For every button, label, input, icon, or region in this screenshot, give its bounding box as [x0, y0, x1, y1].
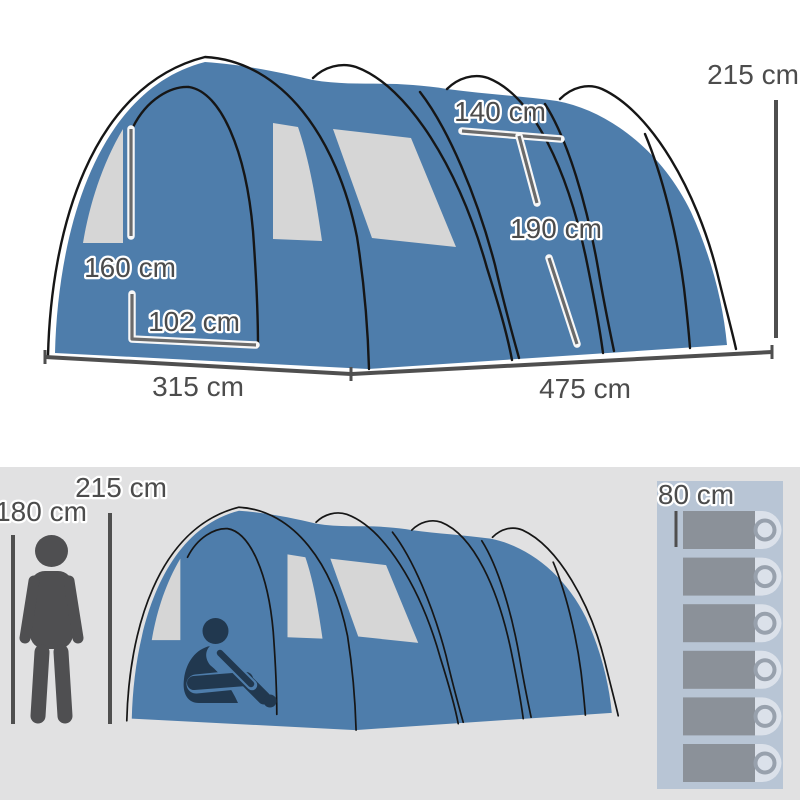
person-head: [35, 535, 68, 567]
sitting-person-head: [203, 618, 229, 644]
bag-width-label: 80 cm: [658, 479, 734, 510]
sleeping-bag-body: [683, 697, 755, 735]
front-width-label: 315 cm: [152, 371, 244, 402]
sleeping-bag-body: [683, 511, 755, 549]
sleeping-bag-body: [683, 744, 755, 782]
window-width-label: 102 cm: [148, 306, 240, 337]
person-leg-right: [61, 652, 65, 716]
person-leg-left: [38, 652, 42, 716]
window-height-label: 160 cm: [84, 252, 176, 283]
product-dimension-diagram: 160 cm 102 cm 140 cm 190 cm 215 cm 315 c…: [0, 0, 800, 800]
door-height-label: 190 cm: [510, 213, 602, 244]
sitting-person-foot: [264, 695, 277, 708]
sleeping-bag: [683, 744, 782, 782]
person-height-label: 180 cm: [0, 496, 87, 527]
sleeping-bag: [683, 604, 782, 642]
sleeping-bag-body: [683, 604, 755, 642]
top-diagram: 160 cm 102 cm 140 cm 190 cm 215 cm 315 c…: [45, 57, 799, 404]
sleeping-bag: [683, 558, 782, 596]
sleeping-bag: [683, 651, 782, 689]
sleeping-bag: [683, 697, 782, 735]
bottom-diagram: 180 cm 215 cm 80 cm: [0, 467, 800, 800]
side-length-label: 475 cm: [539, 373, 631, 404]
tent-height-label: 215 cm: [707, 59, 799, 90]
sleeping-bag: [683, 511, 782, 549]
door-width-label: 140 cm: [454, 96, 546, 127]
sleeping-layout-panel: 80 cm: [657, 479, 783, 789]
tent-height-label-bottom: 215 cm: [75, 472, 167, 503]
sleeping-bag-body: [683, 558, 755, 596]
sleeping-bag-body: [683, 651, 755, 689]
